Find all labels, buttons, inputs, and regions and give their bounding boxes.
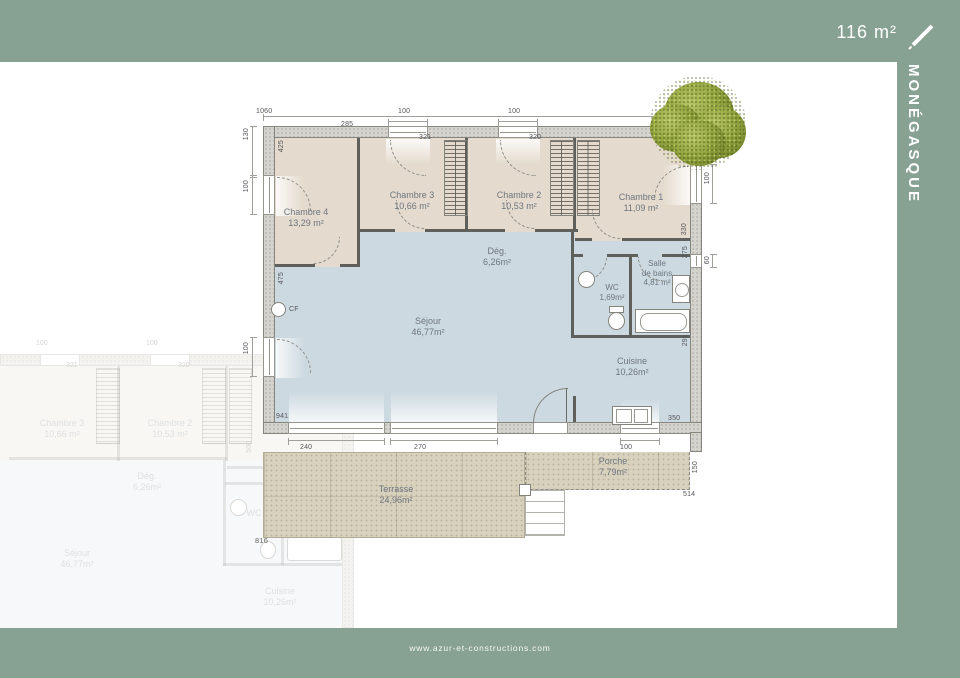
- room-label-porche: Porche7,79m²: [573, 456, 653, 478]
- partition: [607, 254, 638, 257]
- dimension-label: 321: [419, 134, 431, 141]
- total-area-label: 116 m²: [790, 22, 897, 43]
- window: [690, 254, 702, 268]
- ghost-dimension-label: 321: [66, 362, 78, 369]
- dimension-label: 514: [683, 491, 695, 498]
- toilet: [608, 312, 625, 330]
- dimension-line: [288, 440, 385, 441]
- brochure-page: Chambre 310,66 m² Chambre 210,53 m² Dég.…: [0, 0, 960, 678]
- flue-label: CF: [289, 306, 299, 313]
- dimension-label: 816: [255, 537, 268, 545]
- ghost-dimension-label: 320: [178, 362, 190, 369]
- room-label-chambre2: Chambre 210,53 m²: [479, 190, 559, 212]
- ghost-room-label: Chambre 310,66 m²: [22, 418, 102, 440]
- dimension-label: 60: [704, 256, 711, 264]
- dimension-label: 291: [682, 334, 689, 346]
- kitchen-sink-bowl: [616, 409, 632, 423]
- ghost-partition: [9, 457, 227, 460]
- dimension-line: [252, 175, 253, 215]
- room-label-terrasse: Terrasse24,96m²: [356, 484, 436, 506]
- room-label-chambre1: Chambre 111,09 m²: [601, 192, 681, 214]
- pencil-icon: [906, 20, 936, 50]
- toilet-tank: [609, 306, 624, 313]
- room-label-chambre3: Chambre 310,66 m²: [372, 190, 452, 212]
- dimension-label: 100: [243, 342, 250, 354]
- flue-symbol: [271, 302, 286, 317]
- entry-steps: [525, 490, 565, 536]
- dimension-label: 285: [341, 121, 353, 128]
- ghost-room-label: Séjour46,77m²: [37, 548, 117, 570]
- dimension-label: 240: [300, 444, 312, 451]
- partition: [575, 238, 592, 241]
- dimension-line: [390, 440, 498, 441]
- dimension-line: [712, 254, 713, 268]
- ghost-room-label: Cuisine10,26m²: [240, 586, 320, 608]
- dimension-line: [252, 126, 253, 178]
- dimension-label: 130: [243, 128, 250, 140]
- room-label-wc: WC1,69m²: [592, 283, 632, 302]
- ghost-partition: [117, 366, 120, 461]
- kitchen-sink-bowl: [634, 409, 648, 423]
- tree-icon: [650, 76, 746, 170]
- bay-window: [288, 422, 385, 434]
- ghost-wardrobe: [229, 368, 252, 444]
- dimension-label: 941: [276, 413, 288, 420]
- partition: [357, 138, 360, 267]
- dimension-line: [712, 164, 713, 204]
- partition: [275, 264, 315, 267]
- dimension-line: [498, 121, 538, 122]
- partition: [573, 254, 583, 257]
- dimension-label: 350: [668, 415, 680, 422]
- dimension-line: [252, 337, 253, 377]
- ghost-room-label: Chambre 210,53 m²: [130, 418, 210, 440]
- ghost-partition: [223, 563, 342, 566]
- website-url: www.azur-et-constructions.com: [0, 643, 960, 653]
- wall-stub-right: [690, 432, 702, 452]
- wardrobe: [577, 140, 600, 216]
- entry-door-opening: [533, 422, 568, 434]
- wall-top: [263, 126, 702, 138]
- dimension-label: 100: [620, 444, 632, 451]
- partition: [573, 396, 576, 422]
- dimension-line: [263, 116, 700, 117]
- ghost-dimension-label: 500: [246, 441, 253, 453]
- dimension-label: 320: [529, 134, 541, 141]
- partition: [357, 229, 395, 232]
- wall-left: [263, 126, 275, 434]
- bathtub-basin: [640, 313, 687, 331]
- ghost-room-label: Dég.6,26m²: [107, 471, 187, 493]
- window: [690, 164, 702, 204]
- entry-door-leaf: [566, 388, 567, 422]
- dimension-label: 425: [278, 140, 285, 152]
- room-label-sejour: Séjour46,77m²: [388, 316, 468, 338]
- room-label-degagement: Dég.6,26m²: [457, 246, 537, 268]
- model-name: MONÉGASQUE: [905, 64, 922, 284]
- dimension-label: 475: [278, 272, 285, 284]
- ghost-partition: [223, 460, 226, 566]
- dimension-line: [388, 121, 428, 122]
- partition: [571, 232, 574, 338]
- dimension-line: [620, 440, 660, 441]
- porch-post: [519, 484, 531, 496]
- ghost-partition: [225, 366, 228, 461]
- ghost-dimension-label: 100: [146, 340, 158, 347]
- dimension-label: 275: [682, 246, 689, 258]
- window: [263, 337, 275, 377]
- ghost-bathtub: [287, 537, 342, 561]
- frame-bottom: [0, 628, 960, 678]
- dimension-label: 150: [692, 461, 699, 473]
- dimension-label: 330: [681, 223, 688, 235]
- ghost-dimension-label: 100: [36, 340, 48, 347]
- dimension-label: 100: [508, 108, 520, 115]
- dimension-label: 1060: [256, 108, 272, 115]
- dimension-label: 270: [414, 444, 426, 451]
- dimension-label: 100: [398, 108, 410, 115]
- partition: [571, 335, 690, 338]
- dimension-label: 100: [243, 180, 250, 192]
- room-label-cuisine: Cuisine10,26m²: [592, 356, 672, 378]
- room-label-salle-de-bains: Sallede bains4,81 m²: [628, 259, 686, 288]
- partition: [622, 238, 690, 241]
- partition: [340, 264, 360, 267]
- dimension-label: 100: [704, 172, 711, 184]
- room-label-chambre4: Chambre 413,29 m²: [266, 207, 346, 229]
- bay-window: [390, 422, 498, 434]
